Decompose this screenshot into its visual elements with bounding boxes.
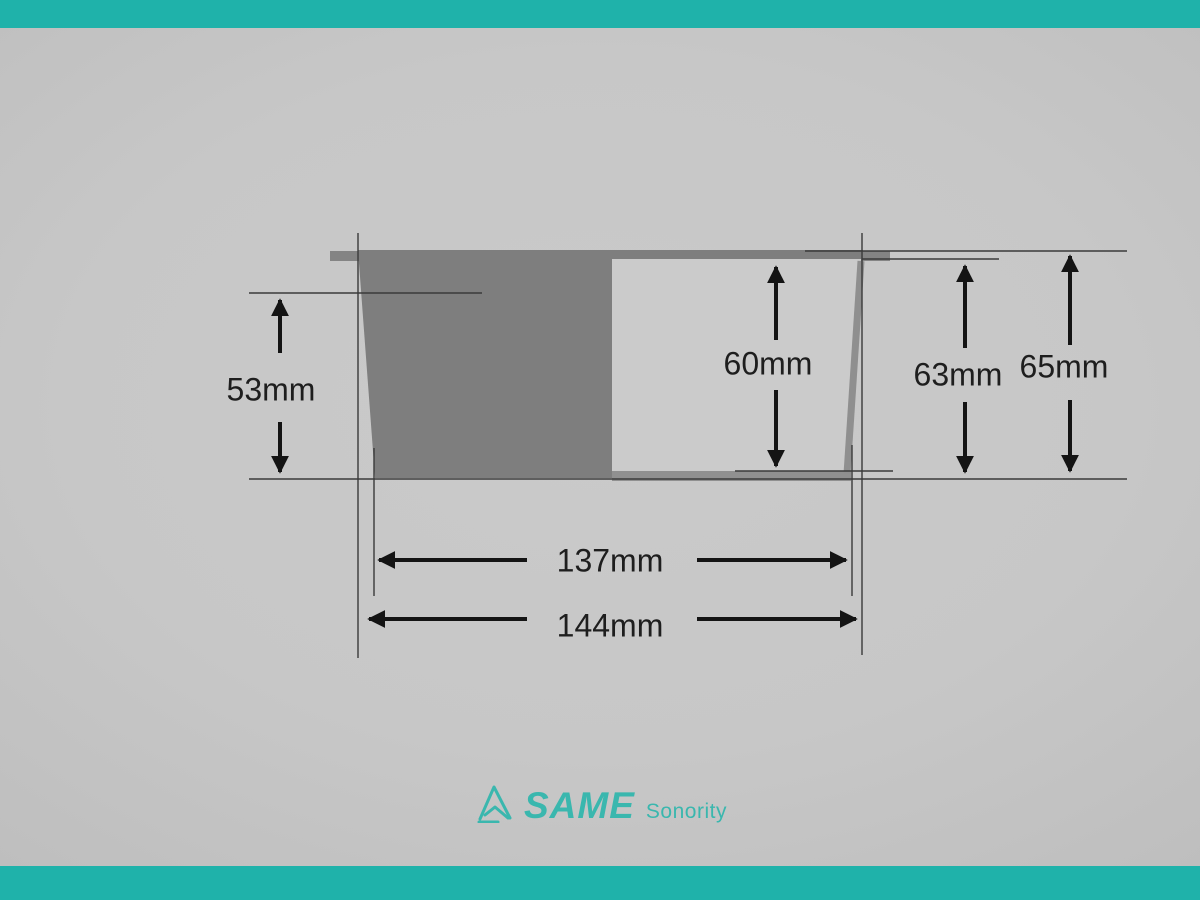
brand-triangle-icon: [477, 783, 513, 823]
screenshot-stage: 53mm 60mm 63mm 65mm 137mm 144mm SAME Son…: [0, 0, 1200, 900]
dim-label-mid-height: 63mm: [914, 357, 1003, 394]
brand-name: SAME: [524, 790, 635, 823]
solid-left-section: [358, 250, 612, 478]
dim-label-overall-height: 65mm: [1020, 349, 1109, 386]
brand-logo: SAME Sonority: [477, 781, 727, 823]
brand-tagline: Sonority: [646, 801, 727, 822]
cross-section-drawing: [0, 0, 1200, 900]
dim-label-inner-width: 137mm: [557, 543, 664, 580]
dim-label-cavity-depth: 60mm: [724, 346, 813, 383]
dim-label-inner-depth-left: 53mm: [227, 372, 316, 409]
dim-label-overall-width: 144mm: [557, 608, 664, 645]
